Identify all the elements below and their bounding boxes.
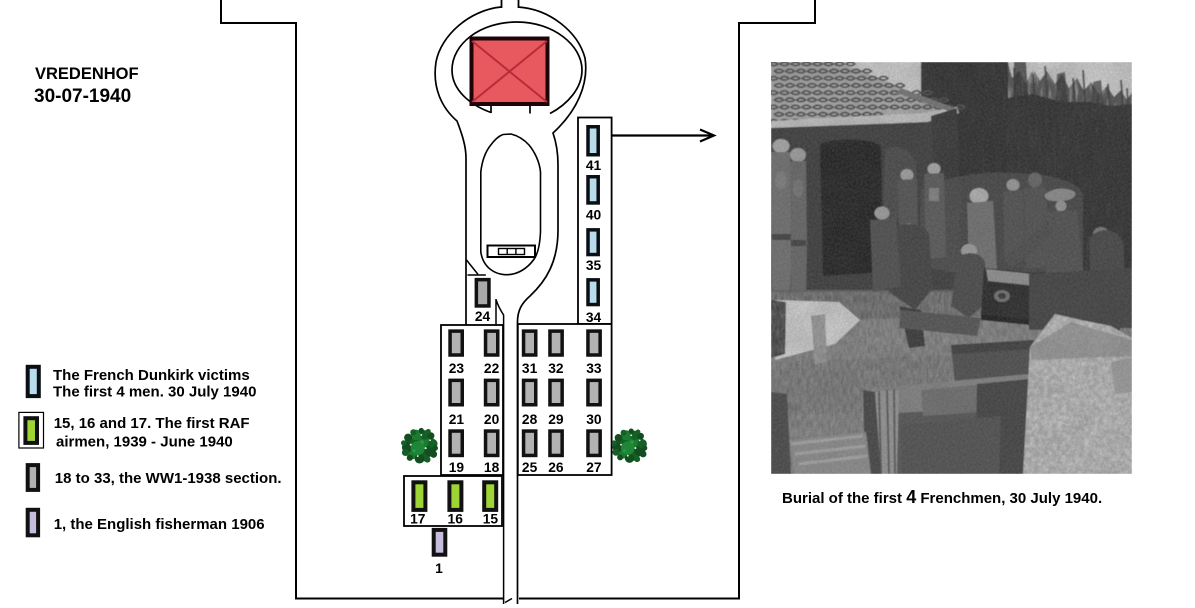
svg-text:32: 32 [548,361,564,376]
svg-text:35: 35 [586,258,602,273]
svg-text:40: 40 [586,208,602,223]
svg-text:1, the English fisherman 1906: 1, the English fisherman 1906 [54,516,265,533]
svg-text:17: 17 [410,512,426,527]
svg-text:27: 27 [586,460,602,475]
svg-text:20: 20 [484,412,500,427]
svg-text:34: 34 [586,310,602,325]
svg-text:33: 33 [586,361,602,376]
svg-text:1: 1 [435,561,443,576]
svg-text:30: 30 [586,412,602,427]
svg-text:19: 19 [449,460,465,475]
svg-text:15: 15 [483,512,499,527]
svg-text:15, 16 and 17. The first RAF: 15, 16 and 17. The first RAF [54,415,250,432]
svg-text:29: 29 [548,412,564,427]
svg-text:31: 31 [522,361,538,376]
svg-text:21: 21 [449,412,465,427]
svg-text:30-07-1940: 30-07-1940 [34,86,131,107]
svg-text:Burial of the first 4 Frenchme: Burial of the first 4 Frenchmen, 30 July… [782,487,1102,507]
svg-text:22: 22 [484,361,500,376]
svg-text:28: 28 [522,412,538,427]
svg-text:41: 41 [586,158,602,173]
svg-text:25: 25 [522,460,538,475]
svg-text:26: 26 [548,460,564,475]
svg-text:18 to 33, the WW1-1938 section: 18 to 33, the WW1-1938 section. [55,470,282,487]
svg-text:16: 16 [448,512,464,527]
svg-text:24: 24 [475,309,491,324]
svg-text:VREDENHOF: VREDENHOF [35,65,139,83]
svg-text:The French Dunkirk victims: The French Dunkirk victims [53,367,250,384]
svg-text:18: 18 [484,460,500,475]
svg-text:The first 4 men. 30 July 1940: The first 4 men. 30 July 1940 [53,384,256,401]
svg-text:airmen, 1939 - June 1940: airmen, 1939 - June 1940 [56,434,233,451]
svg-text:23: 23 [449,361,465,376]
